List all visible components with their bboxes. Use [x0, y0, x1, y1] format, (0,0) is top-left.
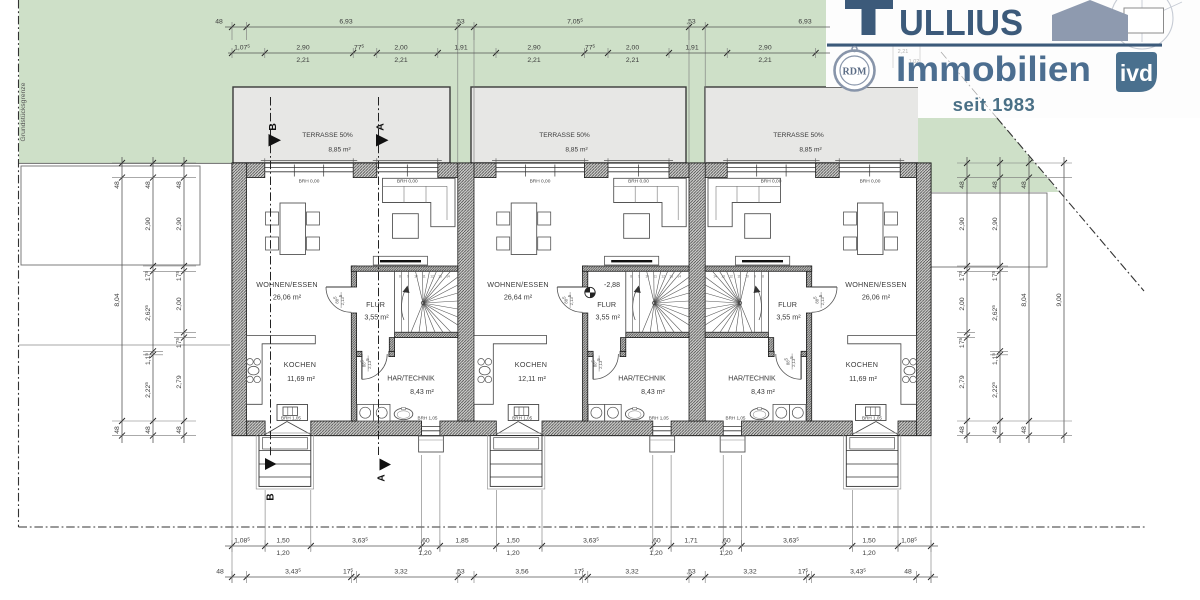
svg-text:8: 8 [630, 275, 632, 279]
svg-text:1,71: 1,71 [684, 538, 697, 545]
svg-text:11,69 m²: 11,69 m² [849, 374, 877, 383]
svg-text:9: 9 [407, 275, 409, 279]
svg-text:12: 12 [729, 275, 733, 279]
svg-text:9,00: 9,00 [1056, 293, 1063, 306]
svg-text:48: 48 [145, 426, 152, 434]
svg-text:2,21: 2,21 [758, 57, 771, 64]
svg-text:8,85 m²: 8,85 m² [799, 147, 822, 154]
svg-text:2,225: 2,225 [991, 382, 999, 398]
svg-text:2,21: 2,21 [626, 57, 639, 64]
svg-text:14: 14 [677, 275, 681, 279]
svg-text:BRH 1,05: BRH 1,05 [512, 416, 532, 421]
svg-text:TERRASSE 50%: TERRASSE 50% [302, 132, 353, 139]
svg-text:2,90: 2,90 [176, 217, 183, 230]
svg-text:HAR/TECHNIK: HAR/TECHNIK [387, 376, 435, 383]
svg-text:3,56: 3,56 [515, 569, 528, 576]
svg-text:BRH 1,05: BRH 1,05 [418, 416, 438, 421]
svg-text:11,69 m²: 11,69 m² [287, 374, 315, 383]
svg-text:3,32: 3,32 [394, 569, 407, 576]
svg-text:HAR/TECHNIK: HAR/TECHNIK [618, 376, 666, 383]
svg-text:1,20: 1,20 [649, 550, 662, 557]
svg-text:TERRASSE 50%: TERRASSE 50% [773, 132, 824, 139]
svg-text:BRH 0,00: BRH 0,00 [530, 179, 551, 185]
svg-text:BRH 0,00: BRH 0,00 [397, 179, 418, 185]
svg-text:13: 13 [438, 275, 442, 279]
svg-text:8,04: 8,04 [1021, 293, 1028, 306]
svg-text:13: 13 [669, 275, 673, 279]
svg-text:48: 48 [904, 569, 912, 576]
svg-text:26,06 m²: 26,06 m² [862, 293, 891, 302]
svg-text:2,90: 2,90 [527, 45, 540, 52]
svg-text:175: 175 [958, 271, 966, 282]
svg-text:175: 175 [175, 338, 183, 349]
svg-text:KOCHEN: KOCHEN [284, 360, 317, 369]
svg-text:3,32: 3,32 [625, 569, 638, 576]
svg-text:26,06 m²: 26,06 m² [273, 293, 302, 302]
svg-text:ivd: ivd [1120, 60, 1153, 86]
svg-text:48: 48 [114, 181, 121, 189]
svg-text:14: 14 [713, 275, 717, 279]
svg-text:,53: ,53 [686, 19, 696, 26]
svg-text:BRH 1,05: BRH 1,05 [726, 416, 746, 421]
svg-text:BRH 0,00: BRH 0,00 [761, 179, 782, 185]
svg-text:3,635: 3,635 [352, 537, 368, 545]
svg-text:WOHNEN/ESSEN: WOHNEN/ESSEN [845, 280, 907, 289]
svg-text:48: 48 [176, 181, 183, 189]
svg-text:2,79: 2,79 [959, 375, 966, 388]
svg-text:1,20: 1,20 [862, 550, 875, 557]
svg-text:175: 175 [991, 271, 999, 282]
svg-text:1,20: 1,20 [719, 550, 732, 557]
svg-text:175: 175 [958, 338, 966, 349]
svg-text:175: 175 [175, 271, 183, 282]
svg-text:3,435: 3,435 [285, 568, 301, 576]
svg-text:B: B [267, 123, 279, 131]
svg-text:48: 48 [992, 181, 999, 189]
svg-text:2,21: 2,21 [527, 57, 540, 64]
svg-text:10: 10 [645, 275, 649, 279]
svg-text:,60: ,60 [721, 538, 731, 545]
svg-text:1,20: 1,20 [276, 550, 289, 557]
svg-text:,53: ,53 [686, 569, 696, 576]
svg-text:9: 9 [754, 275, 756, 279]
svg-text:1,91: 1,91 [454, 45, 467, 52]
svg-text:10: 10 [414, 275, 418, 279]
svg-text:TERRASSE 50%: TERRASSE 50% [539, 132, 590, 139]
svg-text:9: 9 [638, 275, 640, 279]
svg-text:8,43 m²: 8,43 m² [641, 389, 665, 396]
svg-text:,53: ,53 [455, 569, 465, 576]
svg-text:8,85 m²: 8,85 m² [328, 147, 351, 154]
svg-text:2,00: 2,00 [959, 297, 966, 310]
svg-text:8,43 m²: 8,43 m² [751, 389, 775, 396]
svg-text:2,00: 2,00 [176, 297, 183, 310]
svg-text:1,085: 1,085 [234, 537, 250, 545]
svg-text:2,625: 2,625 [144, 305, 152, 321]
svg-text:48: 48 [992, 426, 999, 434]
svg-text:11: 11 [422, 275, 426, 279]
svg-text:ULLIUS: ULLIUS [899, 2, 1023, 43]
svg-text:FLUR: FLUR [597, 300, 616, 309]
svg-text:HAR/TECHNIK: HAR/TECHNIK [728, 376, 776, 383]
svg-text:B: B [266, 493, 277, 500]
svg-text:8: 8 [762, 275, 764, 279]
svg-text:2,90: 2,90 [959, 217, 966, 230]
svg-text:RDM: RDM [843, 67, 867, 78]
svg-text:3,55 m²: 3,55 m² [364, 313, 389, 322]
svg-text:175: 175 [574, 568, 585, 576]
svg-text:1,20: 1,20 [506, 550, 519, 557]
svg-text:8,85 m²: 8,85 m² [565, 147, 588, 154]
svg-text:3,55 m²: 3,55 m² [776, 313, 801, 322]
svg-text:3,435: 3,435 [850, 568, 866, 576]
svg-text:2,225: 2,225 [144, 382, 152, 398]
svg-text:FLUR: FLUR [778, 300, 797, 309]
svg-text:2,90: 2,90 [296, 45, 309, 52]
svg-text:6,93: 6,93 [339, 19, 352, 26]
svg-text:3,32: 3,32 [743, 569, 756, 576]
svg-text:3,55 m²: 3,55 m² [596, 313, 621, 322]
svg-text:8: 8 [399, 275, 401, 279]
svg-text:2,21: 2,21 [296, 57, 309, 64]
svg-text:12: 12 [661, 275, 665, 279]
svg-text:48: 48 [959, 426, 966, 434]
svg-text:KOCHEN: KOCHEN [515, 360, 548, 369]
svg-text:175: 175 [343, 568, 354, 576]
svg-text:A: A [377, 474, 388, 481]
svg-text:3,635: 3,635 [783, 537, 799, 545]
svg-text:11: 11 [654, 275, 658, 279]
svg-text:6,93: 6,93 [798, 19, 811, 26]
svg-text:KOCHEN: KOCHEN [846, 360, 879, 369]
svg-text:48: 48 [1021, 426, 1028, 434]
svg-text:48: 48 [145, 181, 152, 189]
svg-text:3,635: 3,635 [583, 537, 599, 545]
svg-text:14: 14 [446, 275, 450, 279]
svg-text:BRH 1,05: BRH 1,05 [649, 416, 669, 421]
svg-text:10: 10 [745, 275, 749, 279]
svg-text:1,91: 1,91 [685, 45, 698, 52]
svg-text:BRH 1,05: BRH 1,05 [281, 416, 301, 421]
svg-text:2,90: 2,90 [145, 217, 152, 230]
svg-text:8,04: 8,04 [114, 293, 121, 306]
svg-text:BRH 0,00: BRH 0,00 [860, 179, 881, 185]
svg-text:2,00: 2,00 [626, 45, 639, 52]
svg-text:26,64 m²: 26,64 m² [504, 293, 533, 302]
svg-text:1,50: 1,50 [506, 538, 519, 545]
svg-text:48: 48 [176, 426, 183, 434]
svg-text:11: 11 [737, 275, 741, 279]
svg-text:,53: ,53 [455, 19, 465, 26]
svg-text:1,15: 1,15 [991, 353, 999, 365]
svg-text:2,00: 2,00 [394, 45, 407, 52]
svg-text:1,50: 1,50 [862, 538, 875, 545]
svg-text:BRH 0,00: BRH 0,00 [299, 179, 320, 185]
svg-text:48: 48 [1021, 181, 1028, 189]
svg-text:1,15: 1,15 [144, 353, 152, 365]
svg-text:12,11 m²: 12,11 m² [518, 374, 546, 383]
svg-text:Immobilien: Immobilien [896, 50, 1091, 89]
svg-text:2,90: 2,90 [758, 45, 771, 52]
svg-text:FLUR: FLUR [366, 300, 385, 309]
svg-text:2,90: 2,90 [992, 217, 999, 230]
svg-text:BRH 1,05: BRH 1,05 [862, 416, 882, 421]
svg-text:A: A [375, 123, 387, 131]
svg-text:2,625: 2,625 [991, 305, 999, 321]
svg-text:8,43 m²: 8,43 m² [410, 389, 434, 396]
svg-text:48: 48 [114, 426, 121, 434]
svg-text:1,50: 1,50 [276, 538, 289, 545]
svg-text:48: 48 [959, 181, 966, 189]
svg-text:13: 13 [721, 275, 725, 279]
svg-text:2,21: 2,21 [394, 57, 407, 64]
svg-text:BRH 0,00: BRH 0,00 [628, 179, 649, 185]
svg-text:1,85: 1,85 [455, 538, 468, 545]
svg-text:48: 48 [216, 569, 224, 576]
svg-text:WOHNEN/ESSEN: WOHNEN/ESSEN [256, 280, 318, 289]
svg-text:2,79: 2,79 [176, 375, 183, 388]
svg-text:175: 175 [798, 568, 809, 576]
svg-text:WOHNEN/ESSEN: WOHNEN/ESSEN [487, 280, 549, 289]
svg-text:48: 48 [215, 19, 223, 26]
svg-text:-2,88: -2,88 [604, 282, 620, 289]
svg-text:1,20: 1,20 [418, 550, 431, 557]
svg-text:1,085: 1,085 [901, 537, 917, 545]
svg-text:Grundstücksgrenze: Grundstücksgrenze [20, 82, 27, 141]
svg-text:175: 175 [144, 271, 152, 282]
svg-text:12: 12 [430, 275, 434, 279]
svg-text:seit 1983: seit 1983 [953, 94, 1036, 115]
